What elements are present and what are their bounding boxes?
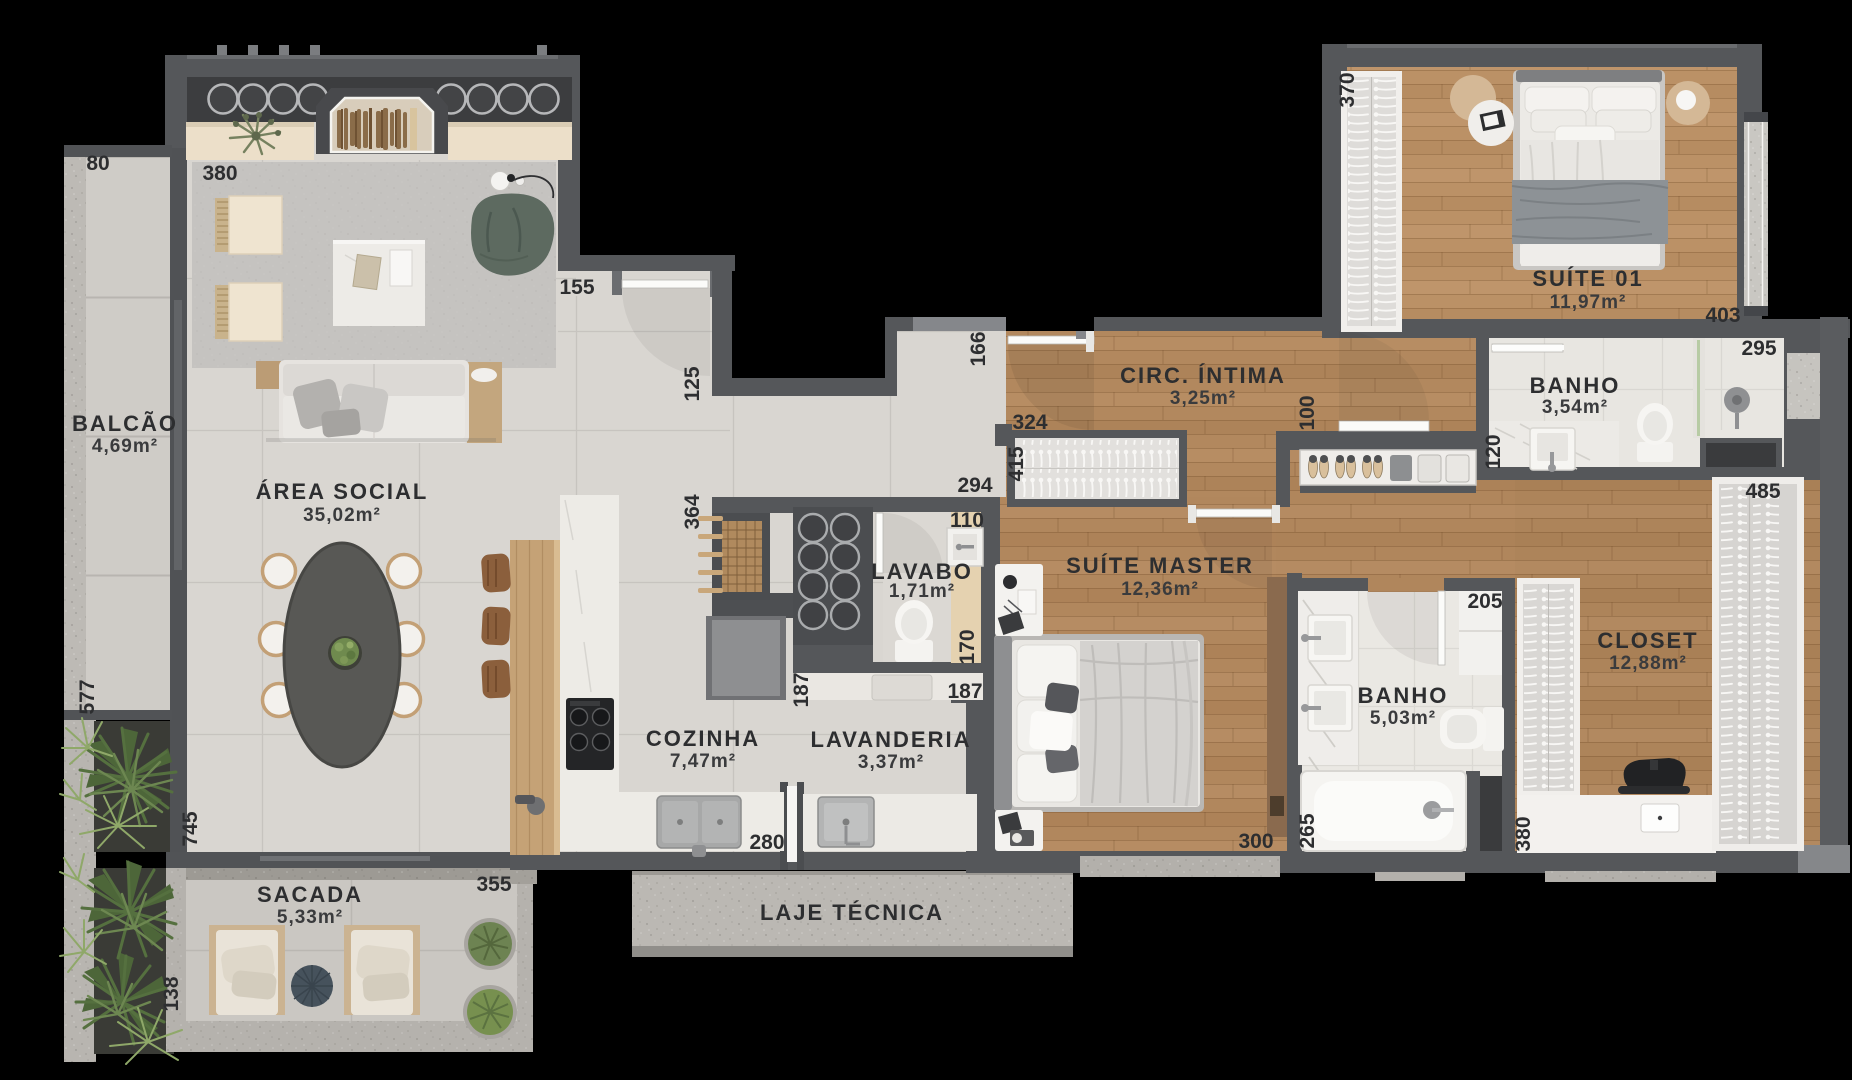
svg-text:294: 294	[957, 474, 992, 497]
svg-text:300: 300	[1238, 830, 1273, 853]
svg-text:125: 125	[681, 366, 704, 401]
svg-text:3,25m²: 3,25m²	[1170, 388, 1236, 409]
svg-text:138: 138	[160, 976, 183, 1011]
svg-text:364: 364	[681, 494, 704, 529]
svg-text:3,37m²: 3,37m²	[858, 752, 924, 773]
svg-text:205: 205	[1467, 590, 1502, 613]
svg-text:120: 120	[1482, 434, 1505, 469]
svg-text:12,36m²: 12,36m²	[1121, 579, 1199, 600]
svg-text:155: 155	[559, 276, 594, 299]
svg-text:187: 187	[947, 680, 982, 703]
svg-text:1,71m²: 1,71m²	[889, 581, 955, 602]
svg-text:355: 355	[476, 873, 511, 896]
svg-text:324: 324	[1012, 411, 1047, 434]
svg-text:415: 415	[1005, 446, 1028, 481]
svg-text:SUÍTE MASTER: SUÍTE MASTER	[1066, 553, 1254, 578]
svg-text:370: 370	[1336, 72, 1359, 107]
svg-text:485: 485	[1745, 480, 1780, 503]
svg-text:380: 380	[1512, 816, 1535, 851]
svg-text:COZINHA: COZINHA	[646, 726, 760, 751]
svg-text:11,97m²: 11,97m²	[1550, 292, 1627, 313]
svg-text:12,88m²: 12,88m²	[1609, 653, 1687, 674]
svg-text:BALCÃO: BALCÃO	[72, 411, 178, 436]
svg-text:3,54m²: 3,54m²	[1542, 397, 1608, 418]
svg-text:BANHO: BANHO	[1530, 373, 1621, 398]
svg-text:CLOSET: CLOSET	[1597, 628, 1698, 653]
svg-text:CIRC. ÍNTIMA: CIRC. ÍNTIMA	[1120, 363, 1286, 388]
svg-text:4,69m²: 4,69m²	[92, 436, 158, 457]
svg-text:5,03m²: 5,03m²	[1370, 708, 1436, 729]
svg-text:187: 187	[790, 672, 813, 707]
svg-text:80: 80	[86, 152, 109, 175]
svg-text:265: 265	[1296, 813, 1319, 848]
svg-text:745: 745	[179, 811, 202, 846]
svg-text:100: 100	[1296, 395, 1319, 430]
svg-text:577: 577	[76, 679, 99, 714]
svg-text:403: 403	[1705, 304, 1740, 327]
svg-text:380: 380	[202, 162, 237, 185]
svg-text:35,02m²: 35,02m²	[303, 505, 381, 526]
svg-text:170: 170	[956, 629, 979, 664]
svg-text:166: 166	[967, 331, 990, 366]
svg-text:ÁREA SOCIAL: ÁREA SOCIAL	[256, 479, 429, 504]
svg-text:LAJE TÉCNICA: LAJE TÉCNICA	[760, 900, 944, 925]
svg-text:SACADA: SACADA	[257, 882, 363, 907]
svg-text:110: 110	[950, 509, 984, 532]
svg-text:SUÍTE 01: SUÍTE 01	[1532, 266, 1643, 291]
svg-text:7,47m²: 7,47m²	[670, 751, 736, 772]
svg-text:280: 280	[749, 831, 784, 854]
svg-text:295: 295	[1741, 337, 1776, 360]
svg-text:BANHO: BANHO	[1358, 683, 1449, 708]
svg-text:5,33m²: 5,33m²	[277, 907, 343, 928]
svg-text:LAVANDERIA: LAVANDERIA	[811, 727, 972, 752]
